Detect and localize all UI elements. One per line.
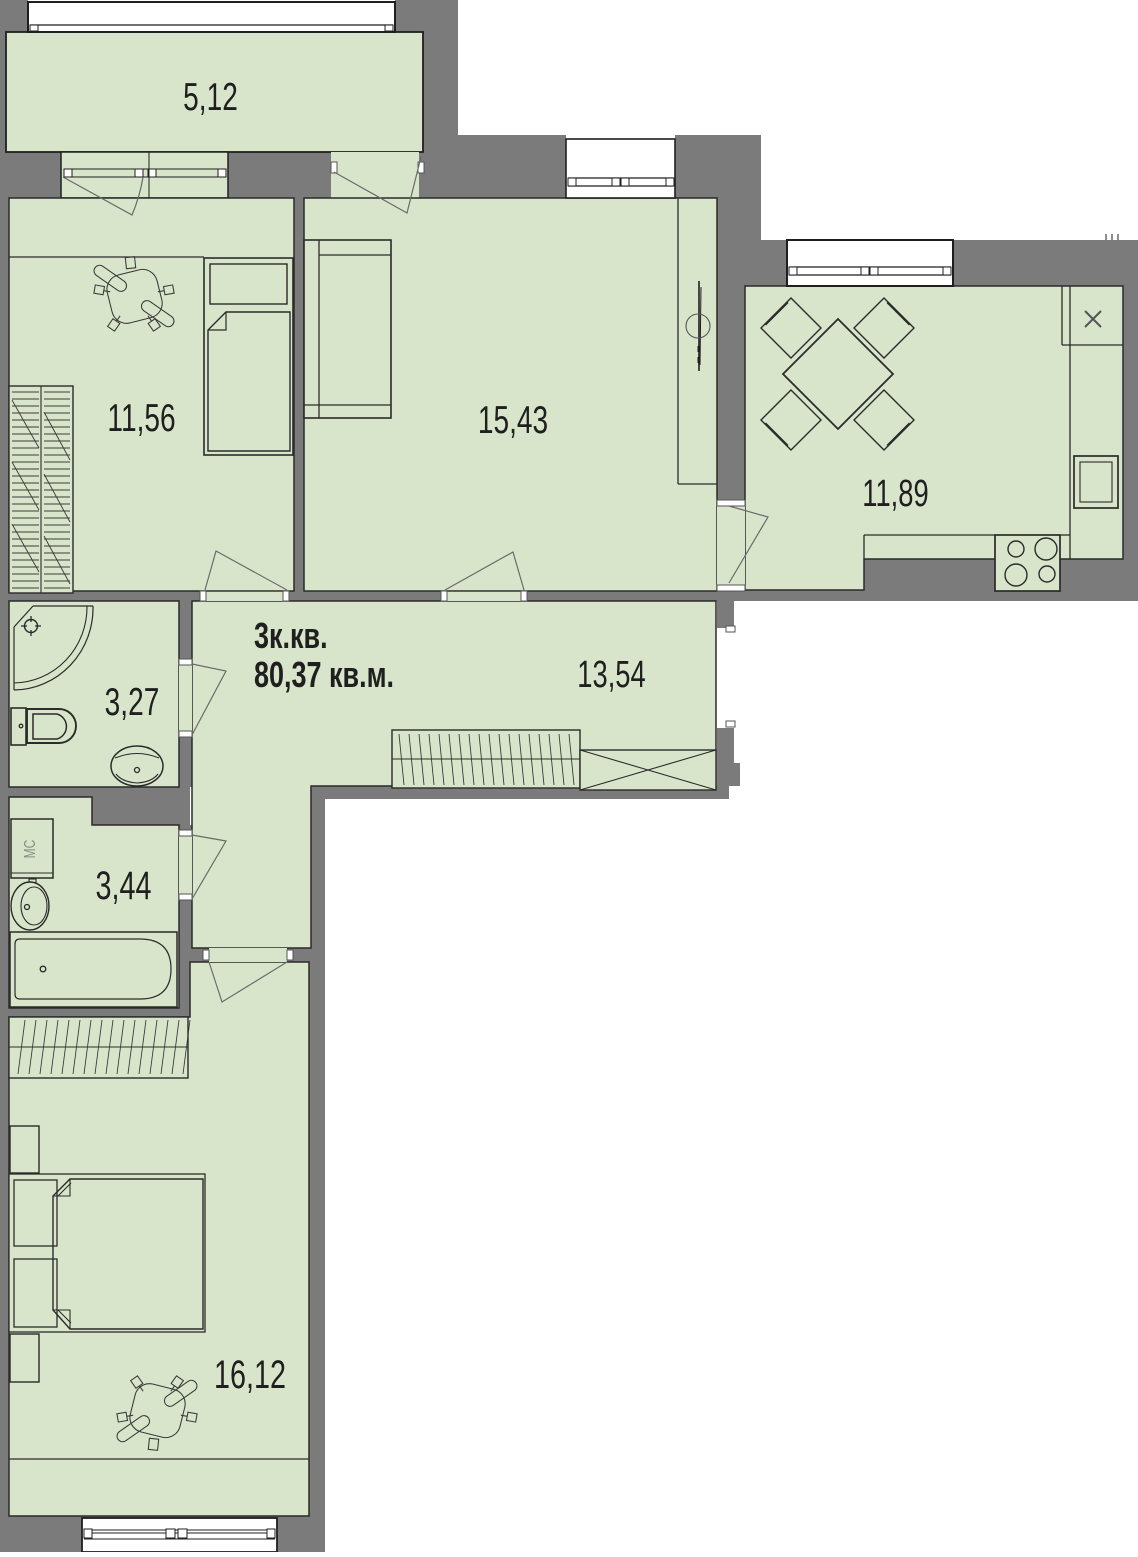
- svg-text:3к.кв.: 3к.кв.: [254, 615, 328, 656]
- svg-text:5,12: 5,12: [183, 76, 238, 120]
- svg-text:3,27: 3,27: [105, 681, 160, 725]
- svg-text:3,44: 3,44: [95, 863, 151, 908]
- svg-text:16,12: 16,12: [214, 1352, 286, 1397]
- svg-text:МС: МС: [20, 840, 38, 859]
- svg-text:11,56: 11,56: [107, 397, 175, 441]
- svg-text:11,89: 11,89: [862, 473, 928, 515]
- svg-text:15,43: 15,43: [478, 399, 548, 443]
- svg-text:13,54: 13,54: [577, 654, 645, 696]
- svg-text:80,37 кв.м.: 80,37 кв.м.: [254, 654, 394, 695]
